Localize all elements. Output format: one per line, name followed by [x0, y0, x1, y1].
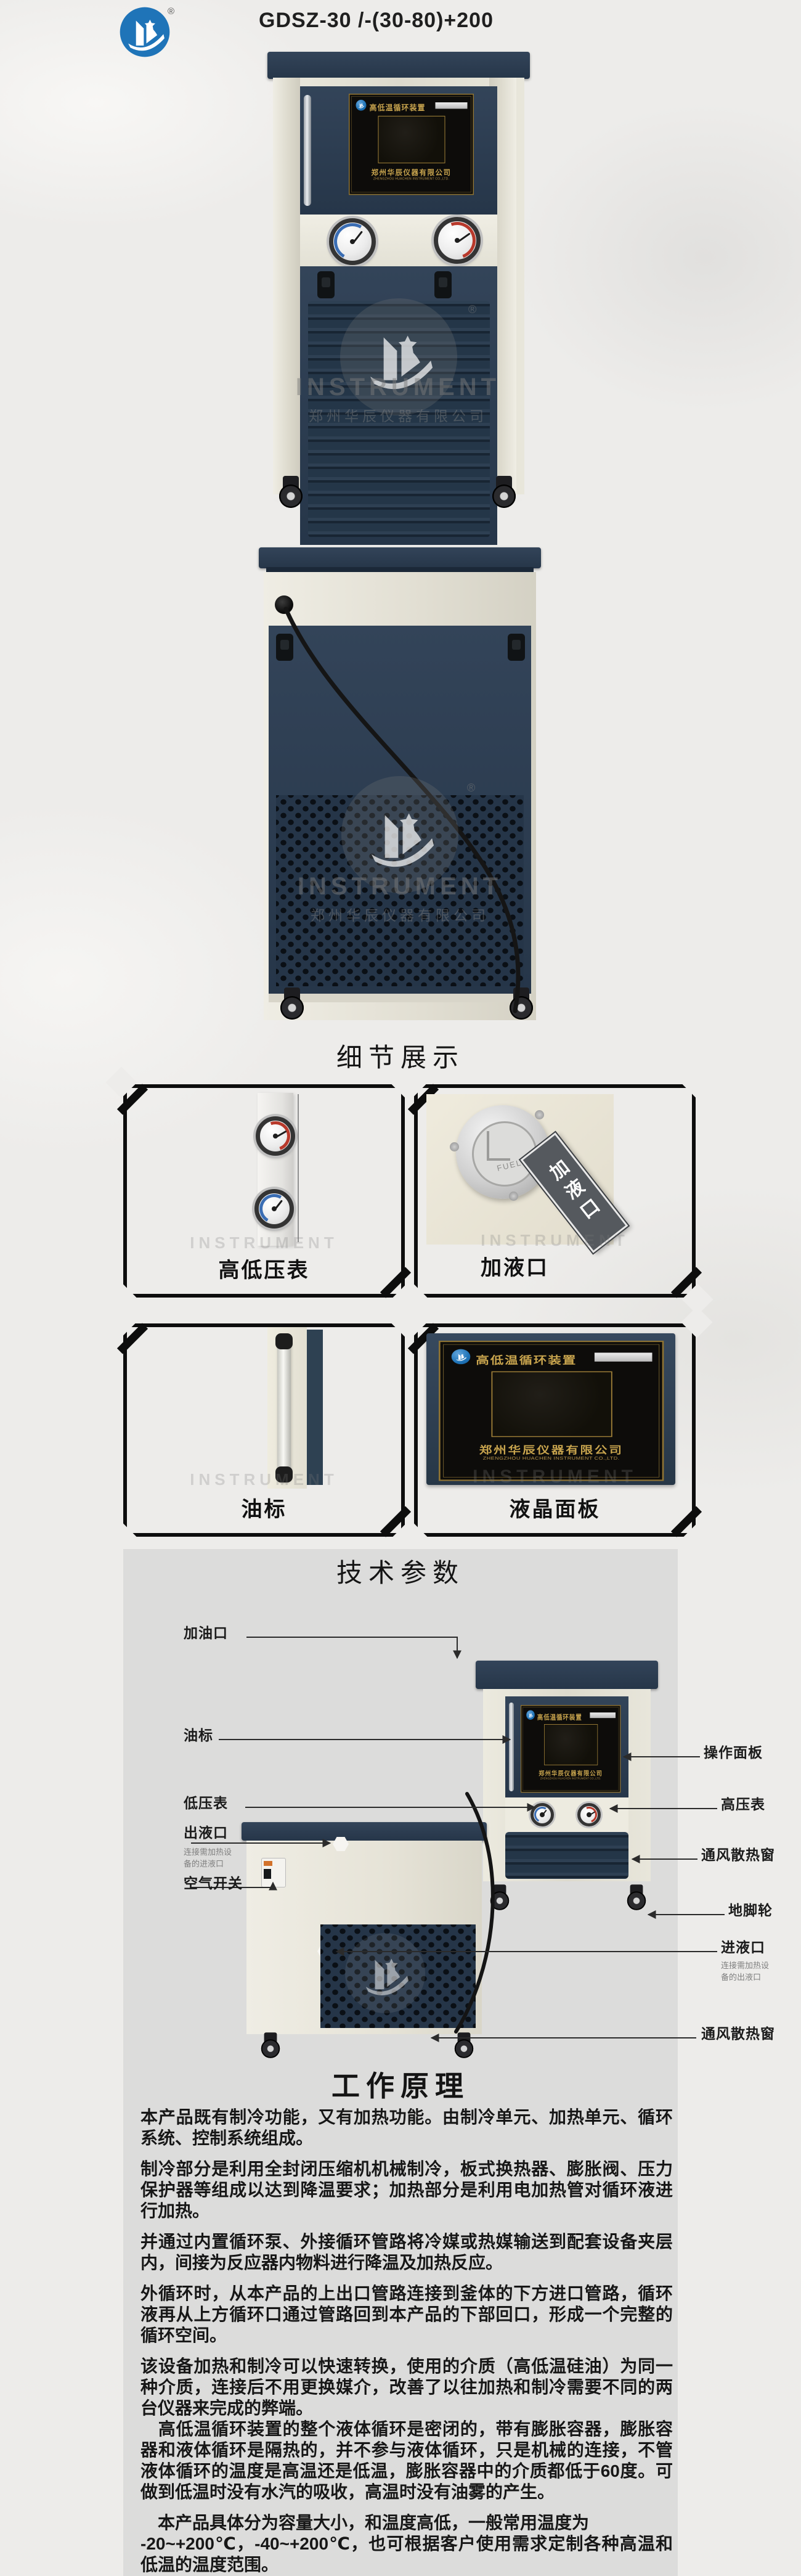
door-edge [307, 1330, 323, 1485]
oil-sight-glass [304, 95, 311, 206]
machine-front-photo: 高低温循环装置 郑州华辰仪器有限公司 ZHENGZHOU HUACHEN INS… [265, 52, 531, 514]
device-name: 高低温循环装置 [476, 1351, 577, 1367]
watermark-registered: ® [468, 303, 476, 316]
callout-oil-gauge: 油标 [184, 1723, 213, 1744]
detail-label: 液晶面板 [418, 1492, 692, 1523]
panel-company-en: ZHENGZHOU HUACHEN INSTRUMENT CO.,LTD. [441, 1456, 662, 1461]
callout-liquid-inlet: 进液口 [721, 1936, 765, 1957]
callout-control-panel: 操作面板 [704, 1741, 763, 1762]
principle-paragraph: 本产品既有制冷功能，又有加热功能。由制冷单元、加热单元、循环系统、控制系统组成。 [140, 2107, 673, 2149]
machine-left-pillar [273, 78, 300, 494]
callout-low-pressure-gauge: 低压表 [184, 1791, 228, 1812]
cap-screw [450, 1142, 459, 1151]
machine-back-photo: ® INSTRUMENT 郑州华辰仪器有限公司 [259, 547, 541, 1024]
detail-box-lcd-panel: 高低温循环装置 郑州华辰仪器有限公司 ZHENGZHOU HUACHEN INS… [414, 1323, 696, 1537]
panel-company-cn: 郑州华辰仪器有限公司 [441, 1441, 662, 1456]
brand-logo-icon [119, 6, 171, 58]
watermark-instrument-text: INSTRUMENT [127, 1470, 401, 1489]
detail-label: 加液口 [338, 1251, 692, 1281]
latch-clip [434, 271, 452, 298]
principle-text-block: 本产品既有制冷功能，又有加热功能。由制冷单元、加热单元、循环系统、控制系统组成。… [140, 2107, 673, 2576]
watermark-company-text: 郑州华辰仪器有限公司 [265, 404, 531, 425]
device-name: 高低温循环装置 [370, 101, 426, 112]
detail-box-filler-port: FUEL 加液口 INSTRUMENT 加液口 [414, 1084, 696, 1298]
callout-liquid-inlet-note: 连接需加热设 备的出液口 [721, 1960, 769, 1984]
low-pressure-gauge [329, 218, 376, 265]
principle-paragraph: 并通过内置循环泵、外接循环管路将冷媒或热媒输送到配套设备夹层内，间接为反应器内物… [140, 2231, 673, 2273]
high-pressure-gauge [434, 217, 481, 264]
high-pressure-gauge [256, 1116, 295, 1156]
callout-liquid-outlet: 出液口 [184, 1821, 228, 1842]
watermark-registered: ® [467, 782, 475, 795]
cap-screw [509, 1192, 518, 1201]
page-title: GDSZ-30 /-(30-80)+200 [259, 9, 494, 33]
tube-cap-top [275, 1333, 293, 1349]
lcd-screen [378, 116, 445, 163]
watermark-instrument-text: INSTRUMENT [265, 374, 531, 401]
principle-paragraph: 该设备加热和制冷可以快速转换，使用的介质（高低温硅油）为同一种介质，连接后不用更… [140, 2356, 673, 2419]
low-pressure-gauge [254, 1189, 294, 1229]
callout-vent-window-2: 通风散热窗 [701, 2022, 775, 2043]
principle-paragraph: 外循环时，从本产品的上出口管路连接到釜体的下方进口管路，循环液再从上方循环口通过… [140, 2283, 673, 2346]
panel-nameplate-strip [436, 102, 468, 108]
registered-mark: ® [168, 6, 174, 17]
detail-label: 油标 [127, 1492, 401, 1523]
panel-company-en: ZHENGZHOU HUACHEN INSTRUMENT CO.,LTD. [350, 177, 473, 181]
lcd-screen [492, 1372, 612, 1437]
panel-company-cn: 郑州华辰仪器有限公司 [350, 166, 473, 178]
callout-high-pressure-gauge: 高压表 [721, 1793, 765, 1813]
watermark-company-text: 郑州华辰仪器有限公司 [259, 904, 541, 925]
control-panel: 高低温循环装置 郑州华辰仪器有限公司 ZHENGZHOU HUACHEN INS… [349, 94, 474, 195]
panel-logo-icon [356, 100, 367, 111]
machine-top-cap [267, 52, 530, 79]
control-panel: 高低温循环装置 郑州华辰仪器有限公司 ZHENGZHOU HUACHEN INS… [439, 1341, 664, 1481]
caster-wheel [492, 476, 516, 508]
oil-sight-tube [277, 1336, 291, 1482]
callout-caster: 地脚轮 [728, 1899, 773, 1920]
callout-vent-window-1: 通风散热窗 [701, 1843, 775, 1864]
callout-oil-filler: 加油口 [184, 1621, 228, 1642]
latch-clip [317, 271, 335, 298]
specs-section-title: 技术参数 [0, 1552, 801, 1590]
cap-screw [535, 1110, 544, 1119]
watermark-instrument-text: INSTRUMENT [127, 1233, 401, 1253]
detail-box-oil-gauge: INSTRUMENT 油标 [123, 1323, 405, 1537]
watermark-instrument-text: INSTRUMENT [259, 873, 541, 901]
watermark-instrument-text: INSTRUMENT [418, 1466, 692, 1487]
panel-logo-icon [452, 1349, 471, 1364]
fuel-cap-notch [487, 1131, 510, 1161]
watermark-instrument-text: INSTRUMENT [418, 1231, 692, 1250]
principle-paragraph: 本产品具体分为容量大小，和温度高低，一般常用温度为 -20~+200℃，-40~… [140, 2513, 673, 2575]
caster-wheel [279, 476, 303, 508]
panel-nameplate-strip [595, 1352, 653, 1361]
principle-paragraph: 制冷部分是利用全封闭压缩机机械制冷，板式换热器、膨胀阀、压力保护器等组成以达到降… [140, 2159, 673, 2222]
principle-section-title: 工作原理 [0, 2064, 801, 2104]
panel-seam-line [298, 1094, 299, 1242]
callout-liquid-outlet-note: 连接需加热设 备的进液口 [184, 1847, 232, 1870]
callout-air-switch: 空气开关 [184, 1871, 243, 1892]
product-page: ® GDSZ-30 /-(30-80)+200 高低温循环装置 郑州华辰仪器有限… [0, 0, 801, 2576]
principle-paragraph: 高低温循环装置的整个液体循环是密闭的，带有膨胀容器，膨胀容器和液体循环是隔热的，… [140, 2419, 673, 2503]
